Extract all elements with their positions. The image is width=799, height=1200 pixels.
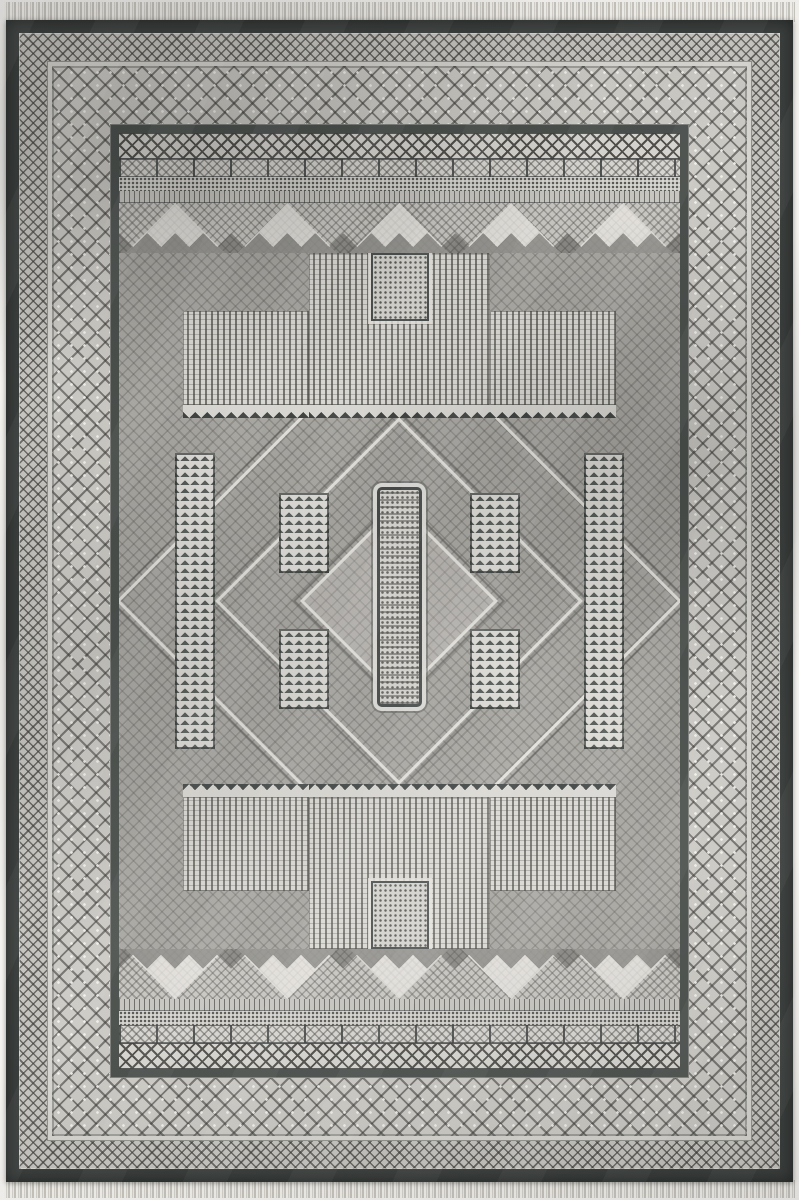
thin-band-bottom — [119, 999, 680, 1011]
pyramid-band-top — [119, 203, 680, 253]
fringe-top — [4, 2, 795, 22]
curtain-bottom-right — [490, 797, 616, 891]
dot-band-top — [119, 177, 680, 191]
tassel-block-top-right — [470, 493, 520, 573]
rug — [6, 20, 793, 1182]
border-gap-line — [47, 61, 752, 1141]
zigzag-band-bottom — [119, 1043, 680, 1069]
curtain-top-center — [309, 253, 490, 405]
dark-guard-stripe — [110, 124, 689, 1078]
picket-points-down — [183, 405, 309, 418]
thin-band-top — [119, 191, 680, 203]
dot-band-bottom — [119, 1011, 680, 1025]
rug-photo — [0, 0, 799, 1200]
tassel-block-bottom-left — [279, 629, 329, 709]
central-field — [119, 253, 680, 949]
zigzag-band-top — [119, 133, 680, 159]
curtain-pendant-bottom — [371, 881, 429, 949]
tassel-block-top-left — [279, 493, 329, 573]
tassel-column-right — [584, 453, 624, 749]
curtain-bottom-center — [309, 797, 490, 949]
major-diamond-border — [52, 66, 747, 1136]
minor-diamond-border — [19, 33, 780, 1169]
central-ornamental-column — [377, 487, 422, 707]
tassel-column-left — [175, 453, 215, 749]
outer-charcoal-frame — [6, 20, 793, 1182]
curtain-top-right — [490, 311, 616, 405]
picket-points-up — [490, 784, 616, 797]
picket-points-down — [490, 405, 616, 418]
curtain-pendant-top — [371, 253, 429, 321]
picket-points-down — [309, 405, 490, 418]
picket-points-up — [183, 784, 309, 797]
pyramid-band-bottom — [119, 949, 680, 999]
curtain-bottom-left — [183, 797, 309, 891]
tassel-block-bottom-right — [470, 629, 520, 709]
tile-band-bottom — [119, 1025, 680, 1043]
curtain-top-left — [183, 311, 309, 405]
fringe-bottom — [4, 1180, 795, 1198]
tile-band-top — [119, 159, 680, 177]
inner-panel — [119, 133, 680, 1069]
picket-points-up — [309, 784, 490, 797]
